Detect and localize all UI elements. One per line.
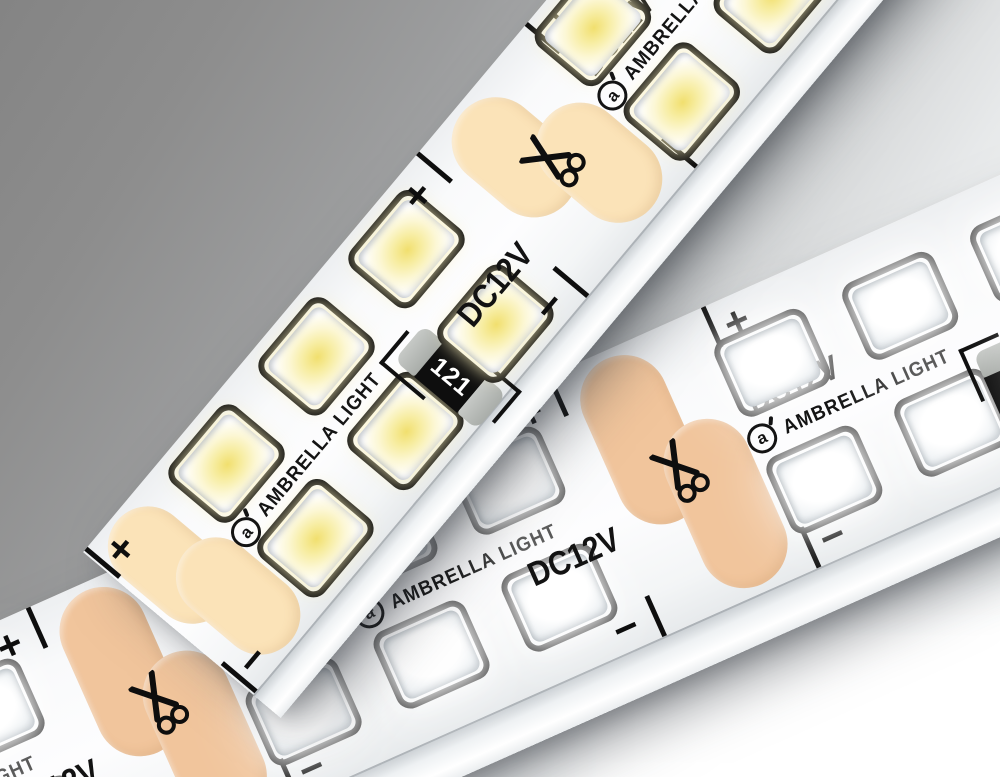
cool-white-led [849, 259, 951, 353]
led-frame [342, 184, 471, 315]
polarity-minus: − [606, 604, 645, 652]
logo-accent-icon [609, 71, 616, 81]
logo-accent-icon [243, 508, 250, 518]
brand-name: AMBRELLA LIGHT [0, 752, 39, 777]
cut-tick [645, 595, 667, 637]
photo-stage: +−aAMBRELLA LIGHT121DC12VDC12V++−−aAMBRE… [0, 0, 1000, 777]
cut-tick [416, 151, 453, 183]
cut-tick [26, 607, 48, 649]
logo-accent-icon [768, 416, 773, 425]
polarity-plus: + [0, 621, 29, 669]
cool-white-led [977, 202, 1000, 296]
cool-white-led [0, 665, 37, 759]
cool-white-led [773, 432, 875, 526]
cut-tick [552, 266, 589, 298]
led-frame [965, 190, 1000, 307]
cool-white-led [380, 607, 482, 701]
warm-white-led [355, 196, 458, 301]
